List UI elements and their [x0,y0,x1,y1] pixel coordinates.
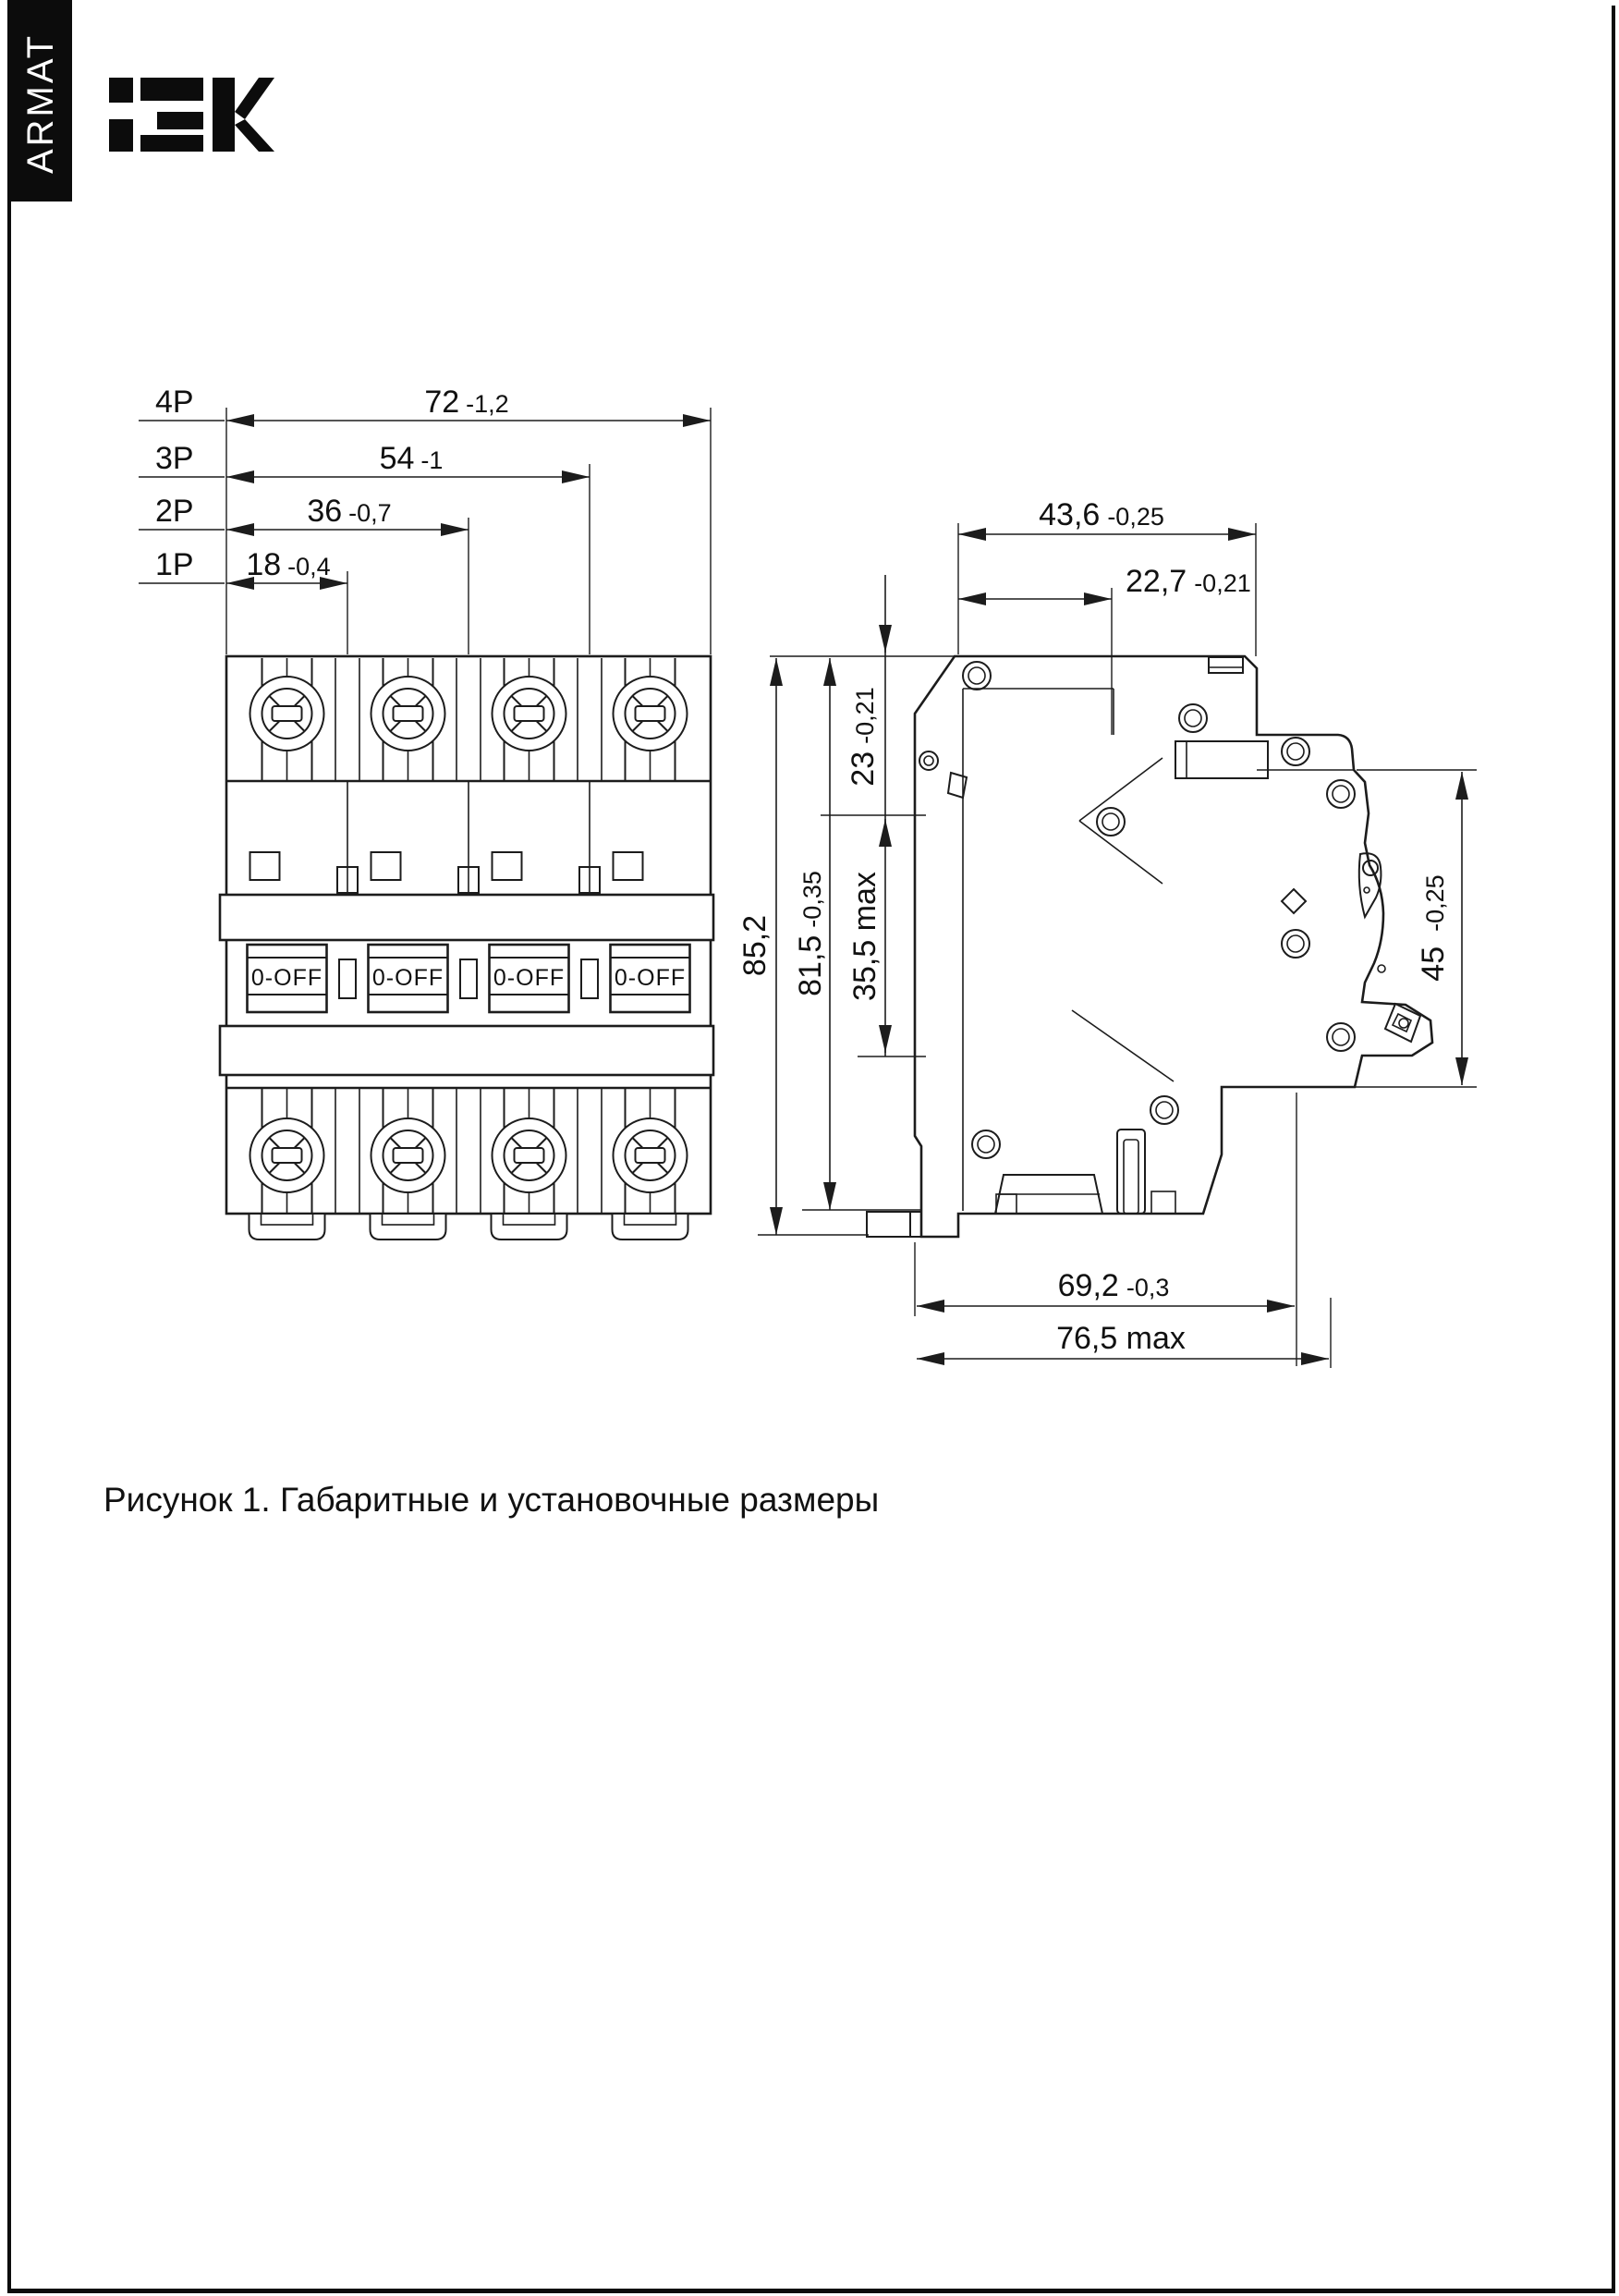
dim-overall-height: 85,2 [737,915,773,976]
logo-i-dot [109,78,133,103]
figure-caption: Рисунок 1. Габаритные и установочные раз… [103,1481,879,1519]
dim-width-1p: 18-0,4 [246,547,330,582]
dim-front-offset: 23-0,21 [846,687,881,786]
dim-width-3p: 54-1 [380,441,444,476]
brand-vertical-label: ARMAT [20,33,61,174]
page-border-bottom [7,2289,1615,2293]
top-clip [1209,657,1243,673]
din-rail-hook [867,1212,921,1237]
dim-mount-depth: 69,2-0,3 [1058,1268,1170,1303]
iek-logo: iEK [109,78,274,152]
dim-front-face-height: 45-0,25 [1416,874,1451,981]
logo-k-stem [213,78,235,152]
dim-rail-zone: 35,5 max [847,872,883,1001]
page-border-right [1612,6,1615,2292]
pole-label-3p: 3P [155,441,194,476]
pole-label-2p: 2P [155,494,194,529]
front-crossbar-lower [220,1026,713,1075]
logo-e-top [140,78,203,101]
logo-e-mid [157,112,203,129]
pole-label-4p: 4P [155,385,194,420]
catalog-page: 0-OFF ARMAT [0,0,1619,2296]
technical-drawing: 0-OFF ARMAT [0,0,1619,2296]
logo-e-bottom [140,135,203,152]
dim-top-depth-inner: 22,7-0,21 [1126,564,1251,599]
side-view [867,656,1432,1237]
front-view [220,656,713,1240]
front-view-dimensions: 4P 3P 2P 1P 72-1,2 54-1 36-0,7 18-0,4 [139,385,711,654]
front-crossbar-upper [220,895,713,940]
pole-label-1p: 1P [155,547,194,582]
logo-k-upper [235,78,274,119]
dim-width-4p: 72-1,2 [424,385,508,420]
dim-width-2p: 36-0,7 [307,494,391,529]
logo-k-lower [235,119,274,152]
page-border-left [7,202,11,2292]
dim-top-depth: 43,6-0,25 [1039,497,1164,532]
dim-body-height: 81,5-0,35 [793,871,828,996]
logo-i-stem [109,119,133,152]
dim-max-depth: 76,5 max [1056,1321,1186,1356]
